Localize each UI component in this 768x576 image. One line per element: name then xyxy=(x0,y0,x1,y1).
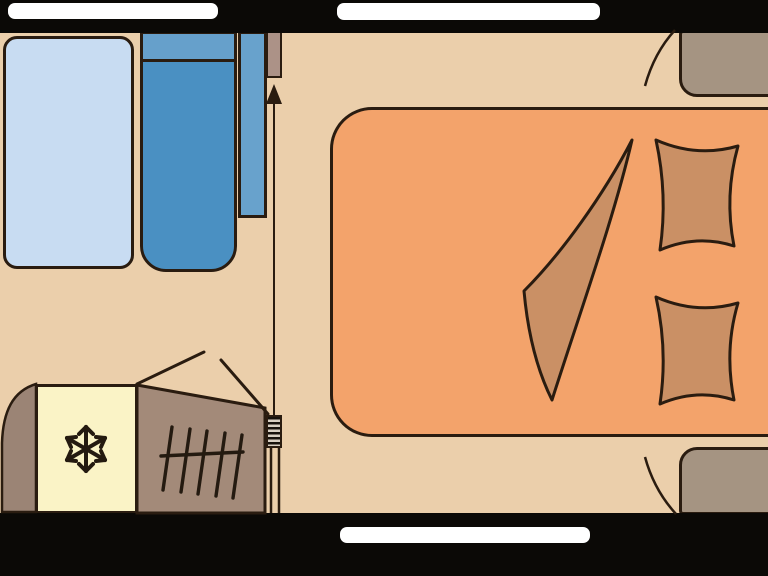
wall-bottom xyxy=(0,513,768,576)
caravan-floorplan xyxy=(0,0,768,576)
window-top-right xyxy=(337,3,600,20)
kitchen-unit xyxy=(137,385,265,513)
partition-panel xyxy=(266,31,282,78)
window-bottom xyxy=(340,527,590,543)
heater-coil xyxy=(266,415,282,448)
entry-partition xyxy=(271,447,279,513)
stove-grate-hatch xyxy=(161,427,243,498)
overhead-cabinet-bottom-right xyxy=(679,447,768,515)
flap-swing-lines xyxy=(137,352,268,414)
entrance-arrow-icon xyxy=(266,84,282,417)
overhead-cabinet-top-right xyxy=(679,30,768,97)
wheel-arch-cabinet xyxy=(2,384,36,512)
seat-backrest xyxy=(238,31,267,218)
fridge xyxy=(35,384,138,514)
seat-headrest-band xyxy=(140,31,237,62)
double-bed xyxy=(330,107,768,437)
window-top-left xyxy=(8,3,218,19)
cabinet-door-arc-bottom xyxy=(645,457,676,514)
dinette-table xyxy=(3,36,134,269)
cabinet-door-arc-top xyxy=(645,30,675,86)
seat-cushion xyxy=(140,59,237,272)
